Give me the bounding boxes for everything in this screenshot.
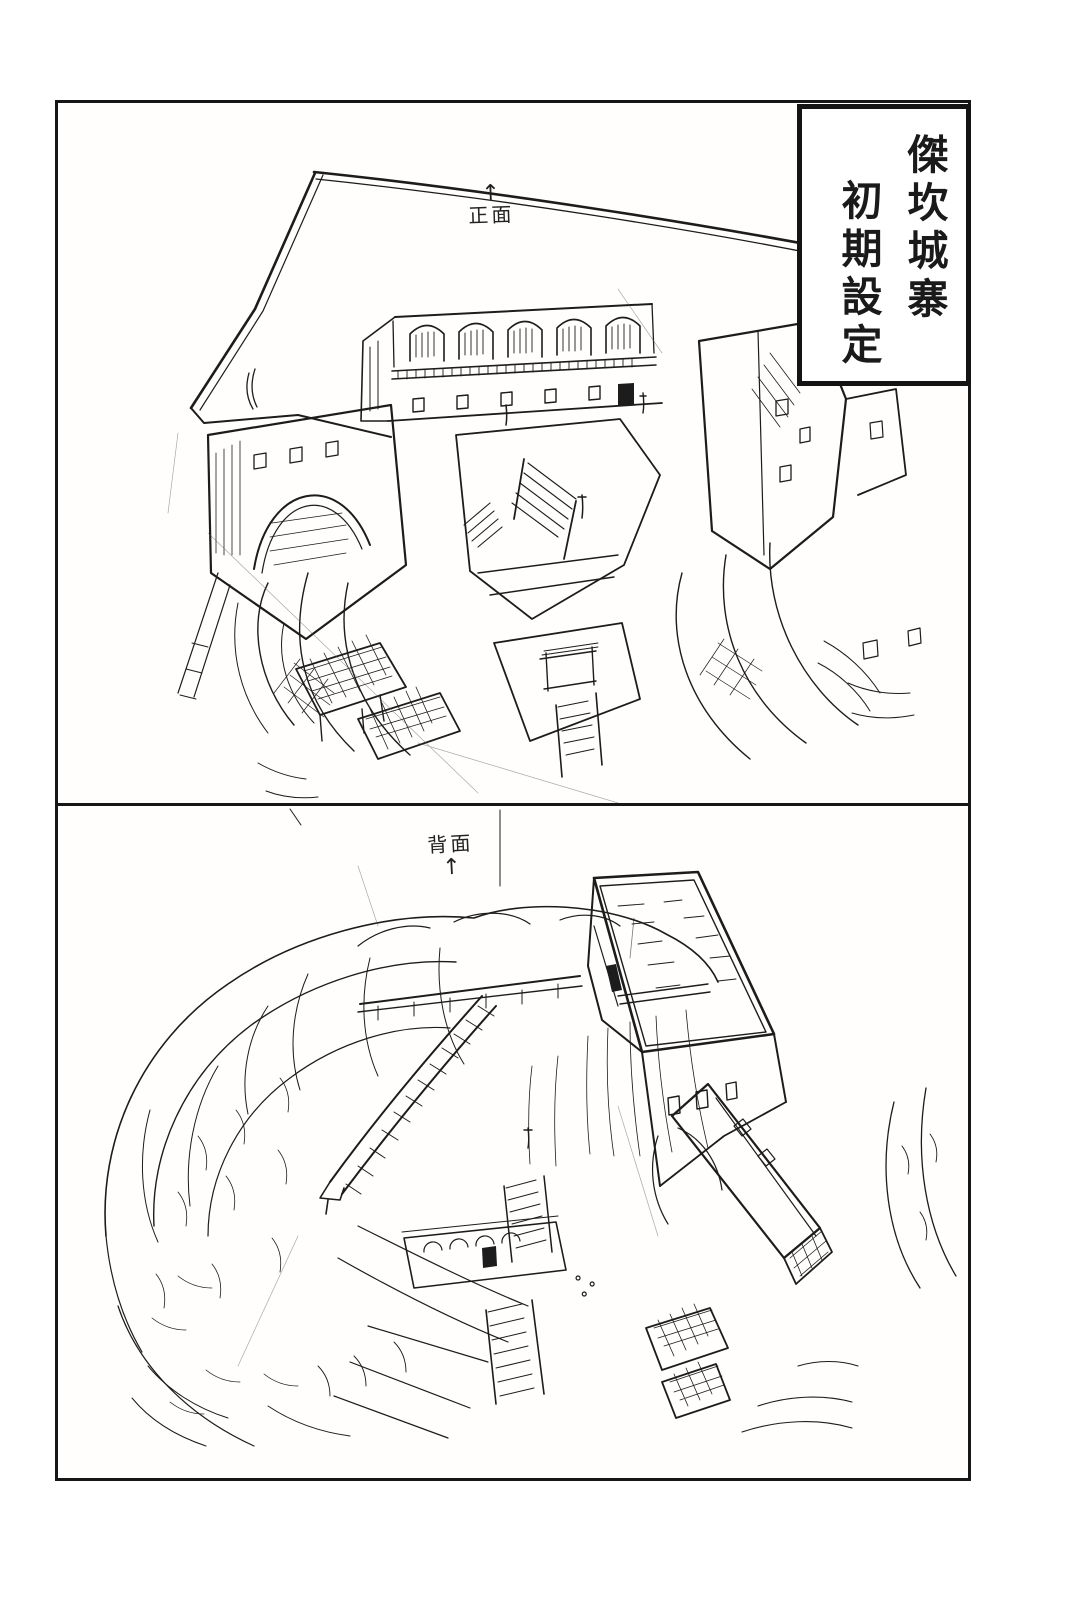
front-label-text: 正面 [456,204,527,229]
pillar-rocks [742,1088,956,1432]
title-box: 傑坎城寨 初期設定 [797,104,971,386]
left-gate-wall [178,405,406,699]
pencil-guides-back [238,866,658,1366]
rock-cliffs [235,543,880,798]
title-column-left: 初期設定 [837,179,878,371]
stray-marks [290,809,634,958]
panel-back-view: 背面 ↑ [55,803,971,1481]
concept-art-page: ↑ 正面 [0,0,1066,1600]
title-column-right: 傑坎城寨 [903,133,944,325]
back-view-sketch [58,806,968,1478]
up-arrow-icon: ↑ [455,182,526,206]
front-view-label: ↑ 正面 [455,182,527,229]
sunken-courtyard [456,405,660,777]
canyon-interior [334,1128,594,1438]
wing-ramp [672,1084,832,1284]
rim-walkway-ramp [320,976,582,1214]
up-arrow-icon: ↑ [416,855,487,881]
arcade-gallery [361,304,662,421]
fortress-roof [191,172,870,437]
back-view-label: 背面 ↑ [415,832,487,881]
canyon-wall [529,984,710,1166]
rock-massif [105,907,718,1446]
hatched-sheds-back [646,1304,730,1418]
